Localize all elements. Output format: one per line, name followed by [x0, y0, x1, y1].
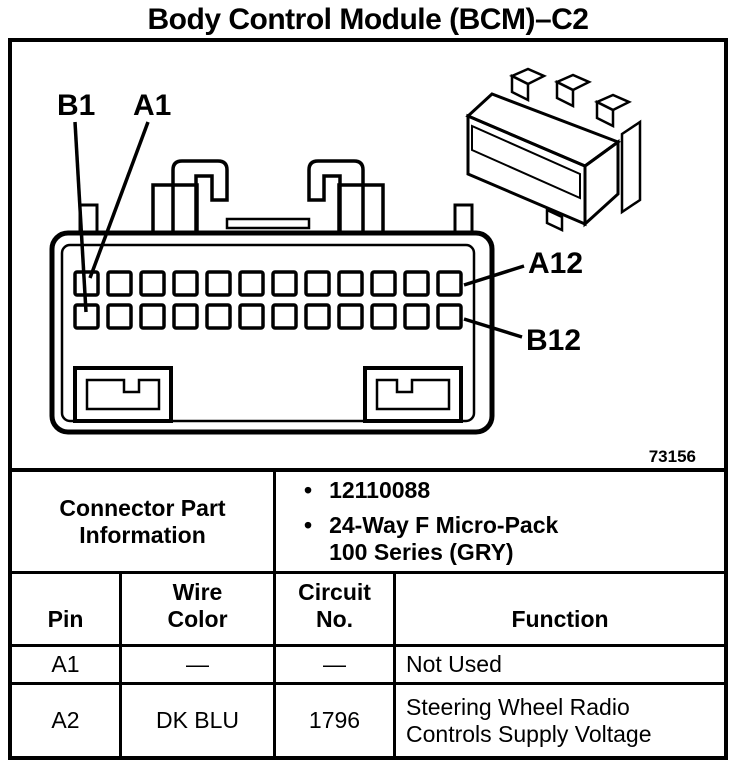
- pin-grid: [75, 272, 461, 328]
- wire-color-cell: —: [122, 647, 276, 682]
- pin-cavity: [108, 272, 131, 295]
- pin-cavity: [273, 272, 296, 295]
- pin-cavity: [339, 305, 362, 328]
- pin-cavity: [405, 305, 428, 328]
- mounting-foot-left-inner: [87, 380, 159, 409]
- lock-tab-base-left: [153, 185, 197, 233]
- pin-cavity: [240, 305, 263, 328]
- pin-cavity: [372, 272, 395, 295]
- wire-color-cell: DK BLU: [122, 685, 276, 756]
- header-circuit-no: Circuit No.: [276, 574, 396, 644]
- connector-body-outline: [52, 233, 492, 432]
- connector-info-table: Connector Part Information • 12110088 • …: [8, 468, 728, 760]
- pin-table-row-a2: A2 DK BLU 1796 Steering Wheel Radio Cont…: [12, 685, 724, 756]
- bullet-icon: •: [304, 512, 312, 539]
- iso-pin-openings-hatch: [472, 126, 580, 198]
- pin-cavity: [207, 305, 230, 328]
- top-edge-step-right: [455, 205, 472, 233]
- iso-tab1-front: [512, 76, 528, 100]
- pin-label-a12: A12: [528, 247, 583, 280]
- pin-cavity: [339, 272, 362, 295]
- iso-tab3-front: [597, 102, 613, 126]
- pin-cell: A1: [12, 647, 122, 682]
- part-number-bullet: • 12110088: [304, 477, 430, 504]
- manual-page: Body Control Module (BCM)–C2: [0, 0, 736, 764]
- iso-end-face: [585, 142, 618, 224]
- figure-number: 73156: [649, 447, 696, 466]
- pin-cavity: [141, 305, 164, 328]
- lock-tab-hook-right: [309, 161, 363, 233]
- page-title: Body Control Module (BCM)–C2: [0, 3, 736, 37]
- mounting-foot-left: [75, 368, 171, 421]
- mounting-foot-right-inner: [377, 380, 449, 409]
- connector-diagram: B1 A1 A12 B12: [8, 38, 728, 472]
- iso-tab2-top: [557, 75, 589, 90]
- pin-cavity: [174, 272, 197, 295]
- pin-cavity: [306, 272, 329, 295]
- connector-type: 24-Way F Micro-Pack 100 Series (GRY): [329, 512, 581, 566]
- pin-cavity: [174, 305, 197, 328]
- pin-cavity: [141, 272, 164, 295]
- latch-bar: [227, 219, 309, 228]
- iso-end-clip: [622, 122, 640, 212]
- leader-line-a1: [90, 122, 148, 278]
- connector-info-details-cell: • 12110088 • 24-Way F Micro-Pack 100 Ser…: [276, 472, 724, 571]
- pin-cavity: [273, 305, 296, 328]
- connector-info-label: Connector Part Information: [45, 495, 240, 549]
- connector-iso-view: [468, 69, 640, 230]
- pin-cell: A2: [12, 685, 122, 756]
- pin-callouts: B1 A1 A12 B12: [57, 89, 583, 357]
- pin-table-header-row: Pin Wire Color Circuit No. Function: [12, 574, 724, 647]
- pin-label-b12: B12: [526, 324, 581, 357]
- pin-cavity: [207, 272, 230, 295]
- pin-label-a1: A1: [133, 89, 171, 122]
- connector-info-label-cell: Connector Part Information: [12, 472, 276, 571]
- pin-cavity: [306, 305, 329, 328]
- circuit-no-cell: —: [276, 647, 396, 682]
- connector-diagram-svg: B1 A1 A12 B12: [12, 42, 724, 468]
- connector-info-row: Connector Part Information • 12110088 • …: [12, 472, 724, 574]
- iso-tab2-front: [557, 82, 573, 106]
- circuit-no-cell: 1796: [276, 685, 396, 756]
- header-wire-color: Wire Color: [122, 574, 276, 644]
- iso-tab3-top: [597, 95, 629, 110]
- pin-cavity: [405, 272, 428, 295]
- bullet-icon: •: [304, 477, 312, 504]
- iso-top-face: [468, 94, 618, 166]
- lock-tab-base-right: [339, 185, 383, 233]
- lock-tab-hook-left: [173, 161, 227, 233]
- iso-tab1-top: [512, 69, 544, 84]
- mounting-foot-right: [365, 368, 461, 421]
- pin-cavity: [108, 305, 131, 328]
- pin-cavity: [438, 305, 461, 328]
- pin-cavity: [240, 272, 263, 295]
- function-cell: Not Used: [396, 647, 724, 682]
- header-function: Function: [396, 574, 724, 644]
- function-cell: Steering Wheel Radio Controls Supply Vol…: [396, 685, 724, 756]
- connector-type-bullet: • 24-Way F Micro-Pack 100 Series (GRY): [304, 512, 581, 566]
- pin-label-b1: B1: [57, 89, 95, 122]
- header-pin: Pin: [12, 574, 122, 644]
- pin-table-row-a1: A1 — — Not Used: [12, 647, 724, 685]
- part-number: 12110088: [329, 477, 430, 504]
- pin-cavity: [438, 272, 461, 295]
- pin-cavity: [372, 305, 395, 328]
